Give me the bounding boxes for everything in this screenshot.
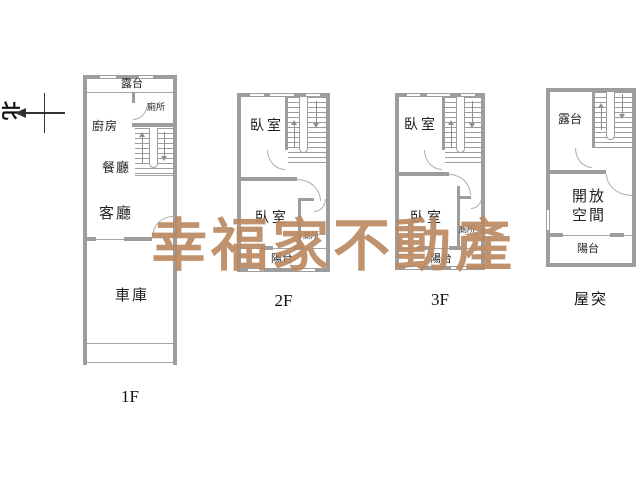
stairs-arrow-down-icon — [164, 132, 165, 156]
floor-label-3f: 3F — [395, 290, 485, 310]
wall — [546, 88, 550, 267]
room-label-open-space-1: 開放 — [572, 188, 606, 205]
room-label-balcony: 陽台 — [577, 243, 599, 255]
window-opening — [250, 93, 264, 97]
room-label-toilet: 廁所 — [147, 104, 165, 114]
room-label-dining: 餐廳 — [102, 162, 130, 176]
wall — [546, 263, 636, 267]
room-label-kitchen: 廚房 — [92, 120, 118, 133]
room-label-terrace: 露台 — [558, 113, 582, 126]
door-arc — [575, 148, 592, 168]
stairs-divider — [149, 128, 158, 168]
door-arc — [267, 150, 285, 170]
wall — [632, 88, 636, 267]
door-arc — [424, 150, 442, 170]
wall — [83, 75, 87, 365]
stairs-divider — [456, 97, 465, 153]
window-opening — [407, 93, 420, 97]
stairs-edge-line — [135, 175, 173, 176]
floor-label-rooftop: 屋突 — [546, 288, 636, 309]
wall — [87, 237, 96, 241]
watermark: 幸福家不動產 — [150, 200, 516, 282]
north-arrow-head-icon — [15, 108, 26, 118]
floor-plan-rooftop: 露台 開放 空間 陽台 — [546, 88, 636, 267]
stairs-arrow-up-icon — [294, 125, 295, 147]
wall — [550, 170, 606, 174]
stairs-arrow-up-icon — [451, 125, 452, 147]
room-label-bedroom-upper: 臥室 — [404, 118, 438, 133]
garage-door-line — [87, 343, 173, 344]
stairs-arrow-down-icon — [622, 94, 623, 114]
room-label-bedroom-upper: 臥室 — [250, 119, 284, 134]
stairs-divider — [606, 92, 615, 140]
garage-door-line — [83, 362, 177, 363]
terrace-line — [87, 92, 173, 93]
window-opening — [546, 210, 550, 230]
door-arc — [606, 174, 632, 196]
wall — [132, 92, 135, 103]
stairs-arrow-up-icon — [601, 108, 602, 130]
room-label-open-space-2: 空間 — [572, 207, 606, 224]
wall — [124, 237, 152, 241]
floor-label-1f: 1F — [83, 387, 177, 407]
north-arrow-line — [25, 112, 65, 114]
stairs-arrow-down-icon — [316, 101, 317, 123]
wall — [132, 123, 173, 127]
stairs-arrow-down-icon — [472, 101, 473, 123]
stairs-divider — [299, 97, 308, 153]
wall — [550, 233, 563, 237]
wall — [610, 233, 624, 237]
wall — [241, 177, 297, 181]
window-line — [96, 239, 124, 240]
room-label-terrace: 露台 — [121, 78, 143, 90]
door-arc — [133, 103, 148, 120]
floor-label-2f: 2F — [237, 291, 330, 311]
room-label-garage: 車庫 — [115, 287, 149, 304]
room-label-living: 客廳 — [99, 205, 133, 222]
door-arc — [449, 174, 471, 195]
north-cross-line — [44, 93, 45, 133]
window-opening — [100, 75, 116, 79]
stairs-arrow-up-icon — [142, 137, 143, 163]
wall — [399, 172, 449, 176]
